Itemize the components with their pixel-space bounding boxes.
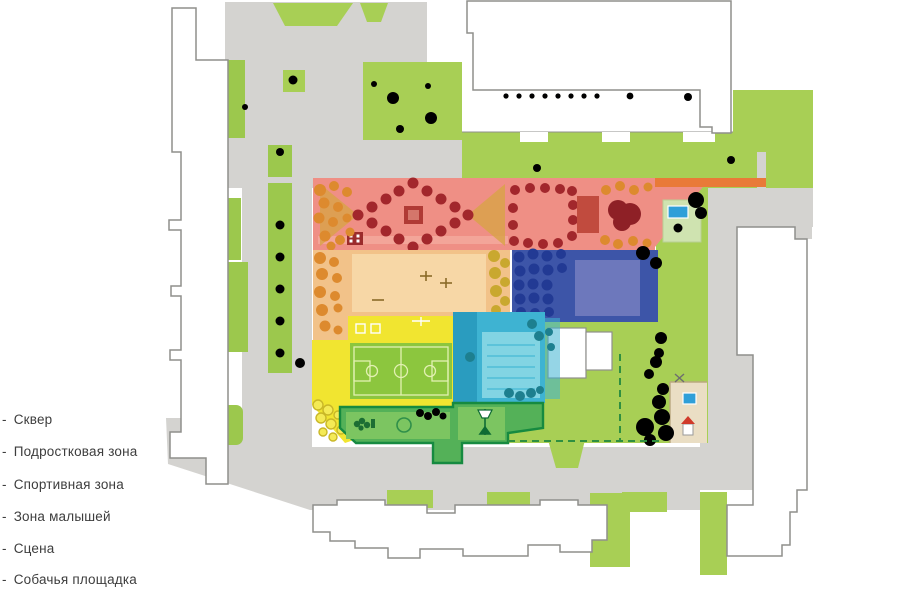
legend-label: Подростковая зона [14, 444, 138, 459]
legend-item-teen: -Подростковая зона [2, 444, 138, 459]
building-left [169, 8, 228, 484]
legend-marker: - [2, 444, 7, 459]
legend-item-kids: -Зона малышей [2, 509, 111, 524]
legend-label: Сцена [14, 541, 55, 556]
legend-marker: - [2, 509, 7, 524]
zone-blue [512, 249, 658, 323]
legend-item-sport: -Спортивная зона [2, 477, 124, 492]
legend-item-dog: -Собачья площадка [2, 572, 137, 587]
legend-item-skver: -Сквер [2, 412, 52, 427]
legend-marker: - [2, 412, 7, 427]
flower-bed [577, 196, 599, 233]
legend-label: Сквер [14, 412, 53, 427]
legend-item-stage: -Сцена [2, 541, 55, 556]
legend-marker: - [2, 477, 7, 492]
legend-label: Собачья площадка [14, 572, 137, 587]
legend-label: Спортивная зона [14, 477, 124, 492]
pool-area [663, 192, 707, 242]
legend-label: Зона малышей [14, 509, 111, 524]
zone-kids [453, 312, 560, 403]
pool [668, 206, 688, 218]
building-bottom [313, 500, 607, 558]
legend-marker: - [2, 572, 7, 587]
legend: -Сквер -Подростковая зона -Спортивная зо… [0, 0, 160, 600]
dog-pool [683, 393, 696, 404]
legend-marker: - [2, 541, 7, 556]
building-top-right [467, 1, 731, 133]
path-strip [655, 178, 766, 187]
structure-block [586, 332, 612, 370]
site-plan: -Сквер -Подростковая зона -Спортивная зо… [0, 0, 900, 600]
